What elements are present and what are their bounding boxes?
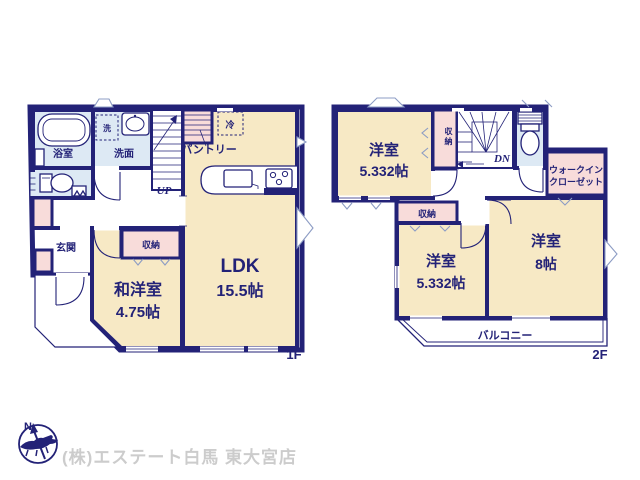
kitchen-counter-icon [201, 166, 297, 195]
label-room-se-area: 8帖 [535, 256, 557, 272]
label-jw-room: 和洋室 [114, 280, 162, 299]
floorplan-page: 浴室 洗 洗面 UP パントリー 冷 LDK 15.5帖 玄関 収納 和洋室 4… [0, 0, 640, 480]
label-dn: DN [493, 153, 511, 165]
washbasin-icon [122, 113, 149, 135]
label-pantry: パントリー [181, 143, 237, 156]
label-entrance: 玄関 [56, 241, 76, 254]
label-closet-vertical: 収納 [440, 127, 452, 147]
shoe-cabinet [35, 250, 52, 272]
closet-hall-1f [33, 198, 52, 228]
label-ldk: LDK [220, 256, 259, 277]
label-balcony: バルコニー [478, 329, 533, 342]
label-storage-1f: 収納 [142, 239, 160, 250]
floor1-plan: 浴室 洗 洗面 UP パントリー 冷 LDK 15.5帖 玄関 収納 和洋室 4… [30, 99, 313, 362]
label-room-nw-area: 5.332帖 [359, 163, 408, 179]
floor2-plan: 洋室 5.332帖 DN ウォークイン クローゼット 収納 洋室 5.332帖 … [334, 98, 617, 362]
footer: N (株)エステート白馬 東大宮店 [19, 421, 297, 467]
label-up: UP [157, 185, 172, 197]
label-room-se: 洋室 [531, 232, 561, 250]
label-wic-line1: ウォークイン [549, 165, 603, 175]
floorplan-drawing: 浴室 洗 洗面 UP パントリー 冷 LDK 15.5帖 玄関 収納 和洋室 4… [0, 0, 640, 480]
label-room-nw: 洋室 [369, 141, 399, 159]
room-sw [397, 223, 487, 318]
label-jw-area: 4.75帖 [116, 303, 160, 321]
label-closet-sw: 収納 [418, 208, 436, 219]
label-ldk-area: 15.5帖 [216, 281, 263, 300]
label-laundry: 洗 [103, 123, 111, 133]
company-watermark: (株)エステート白馬 東大宮店 [62, 447, 297, 467]
label-washroom: 洗面 [114, 147, 134, 160]
label-fridge: 冷 [225, 119, 234, 130]
label-floor2: 2F [592, 347, 607, 362]
entrance-wall-segment [33, 226, 60, 230]
label-room-sw: 洋室 [426, 252, 456, 270]
staircase-1f [152, 110, 182, 190]
compass-north-label: N [24, 421, 32, 433]
label-room-sw-area: 5.332帖 [416, 275, 465, 291]
label-wic-line2: クローゼット [549, 176, 603, 187]
label-bath: 浴室 [53, 147, 73, 160]
label-floor1: 1F [286, 347, 301, 362]
